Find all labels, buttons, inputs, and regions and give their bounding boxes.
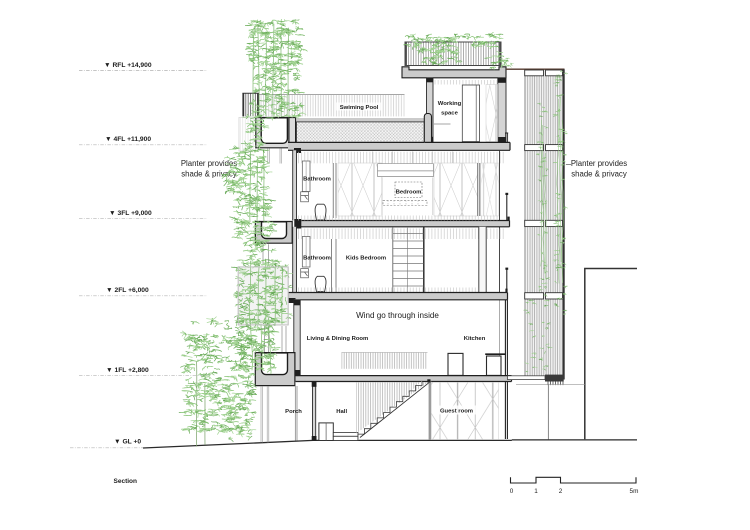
svg-text:Planter provides: Planter provides — [571, 159, 627, 168]
svg-text:Kids Bedroom: Kids Bedroom — [346, 256, 386, 262]
svg-text:space: space — [441, 111, 458, 117]
svg-text:Planter provides: Planter provides — [181, 159, 237, 168]
svg-text:Swiming Pool: Swiming Pool — [340, 105, 379, 111]
svg-text:▼ 4FL +11,900: ▼ 4FL +11,900 — [105, 136, 151, 143]
svg-text:Living & Dining Room: Living & Dining Room — [307, 336, 369, 342]
svg-text:2: 2 — [559, 488, 563, 495]
svg-text:Porch: Porch — [285, 409, 302, 415]
svg-text:0: 0 — [510, 488, 514, 495]
svg-text:shade & privacy: shade & privacy — [571, 170, 627, 179]
svg-text:Working: Working — [438, 101, 462, 107]
svg-text:5m: 5m — [630, 488, 639, 495]
svg-text:Bathroom: Bathroom — [303, 177, 331, 183]
svg-text:▼ GL +0: ▼ GL +0 — [114, 439, 141, 446]
svg-text:Kitchen: Kitchen — [464, 336, 486, 342]
svg-text:▼ RFL +14,900: ▼ RFL +14,900 — [104, 62, 152, 69]
svg-text:Hall: Hall — [336, 409, 347, 415]
svg-text:Bedroom: Bedroom — [396, 190, 422, 196]
svg-text:Guest room: Guest room — [440, 409, 473, 415]
svg-text:Bathroom: Bathroom — [303, 256, 331, 262]
svg-text:▼ 3FL +9,000: ▼ 3FL +9,000 — [109, 210, 152, 217]
svg-text:Section: Section — [114, 478, 138, 485]
svg-text:1: 1 — [534, 488, 538, 495]
svg-text:Wind go through inside: Wind go through inside — [356, 311, 439, 320]
svg-text:▼ 2FL +6,000: ▼ 2FL +6,000 — [106, 287, 149, 294]
svg-text:▼ 1FL +2,800: ▼ 1FL +2,800 — [106, 367, 149, 374]
